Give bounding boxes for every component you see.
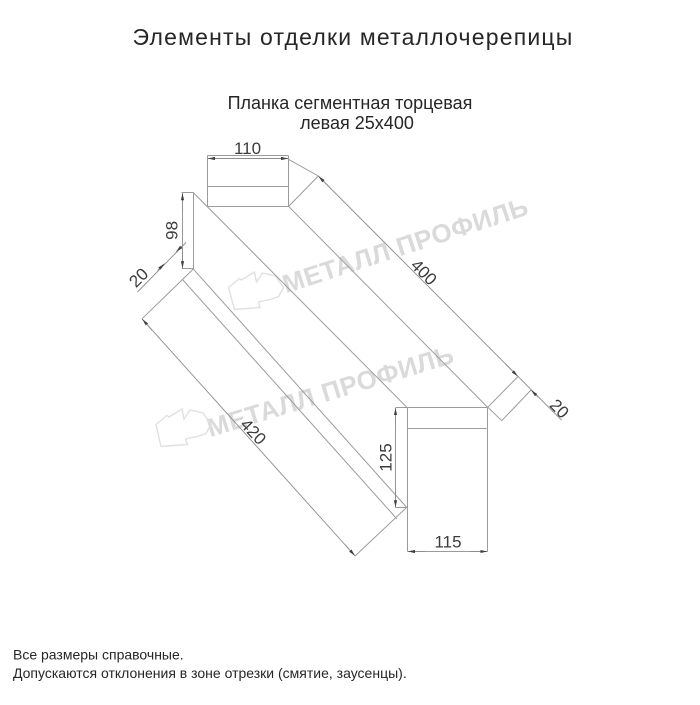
svg-text:Допускаются отклонения в зоне: Допускаются отклонения в зоне отрезки (с… — [13, 665, 407, 681]
svg-text:110: 110 — [234, 139, 261, 158]
svg-text:125: 125 — [377, 443, 396, 471]
svg-text:левая 25х400: левая 25х400 — [300, 113, 414, 133]
svg-text:Планка сегментная торцевая: Планка сегментная торцевая — [228, 93, 473, 113]
svg-text:Элементы отделки металлочерепи: Элементы отделки металлочерепицы — [132, 24, 573, 50]
svg-text:Все размеры справочные.: Все размеры справочные. — [13, 647, 184, 663]
svg-text:115: 115 — [434, 533, 461, 552]
svg-text:98: 98 — [163, 221, 182, 240]
